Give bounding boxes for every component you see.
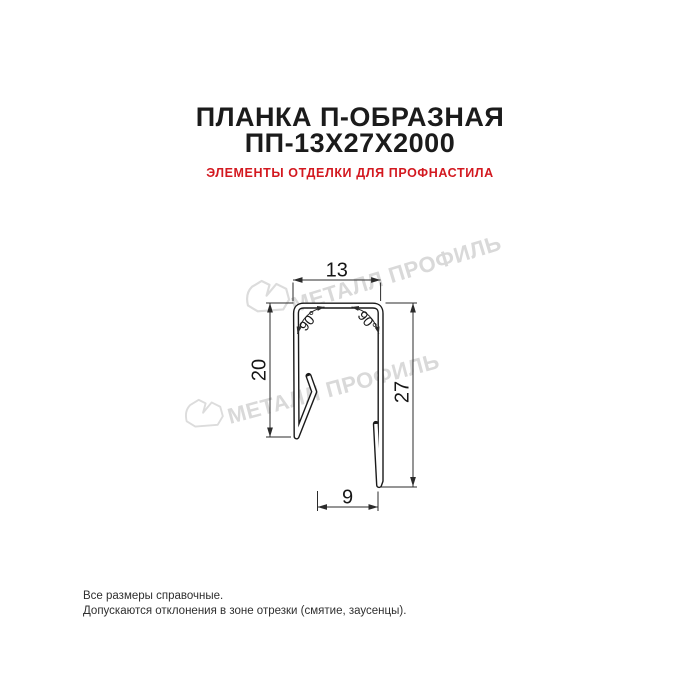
dim-label-right-height: 27 [392, 381, 414, 403]
footer-notes: Все размеры справочные. Допускаются откл… [83, 589, 406, 619]
brand-logo-icon [247, 281, 289, 311]
footer-note-2: Допускаются отклонения в зоне отрезки (с… [83, 604, 406, 619]
angle-label-right: 90° [355, 307, 381, 334]
dim-bottom-width: 9 [318, 487, 379, 512]
dim-right-height: 27 [381, 303, 417, 487]
dim-label-top-width: 13 [326, 260, 348, 282]
dim-label-left-height: 20 [249, 359, 271, 381]
footer-note-1: Все размеры справочные. [83, 589, 406, 604]
dim-label-bottom-width: 9 [342, 487, 353, 509]
brand-logo-icon [186, 400, 223, 427]
product-drawing-card: ПЛАНКА П-ОБРАЗНАЯ ПП-13Х27Х2000 ЭЛЕМЕНТЫ… [0, 0, 700, 700]
angle-annotation-right: 90° [352, 307, 381, 334]
